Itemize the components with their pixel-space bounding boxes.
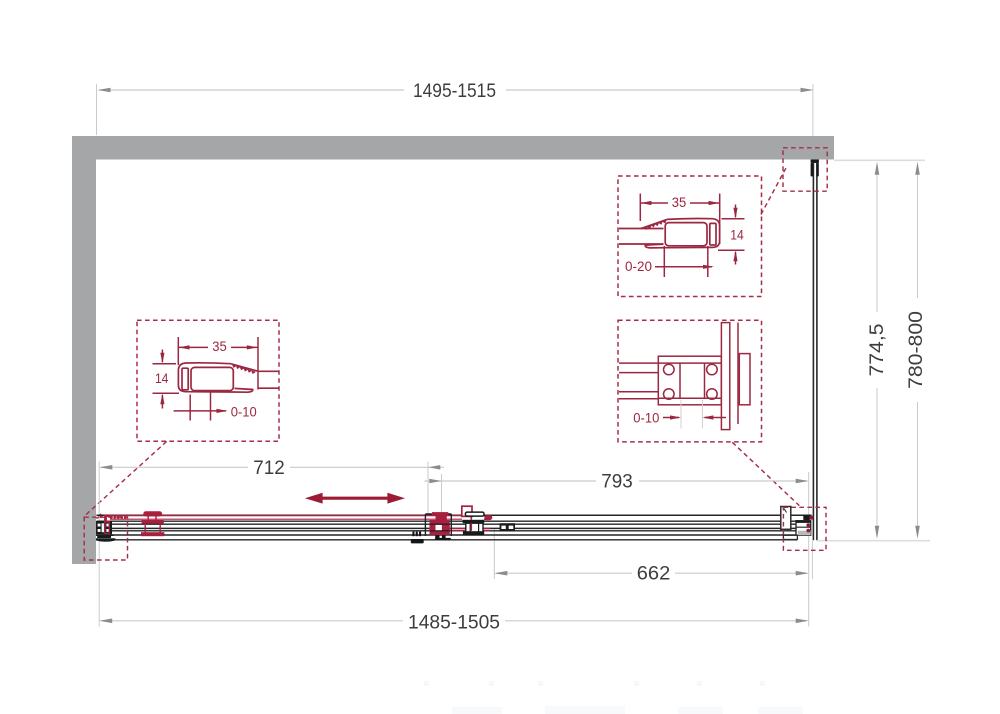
svg-text:35: 35 (212, 338, 227, 354)
svg-text:1495-1515: 1495-1515 (413, 81, 496, 102)
svg-text:0-10: 0-10 (231, 404, 257, 420)
svg-text:712: 712 (253, 458, 285, 479)
svg-text:14: 14 (730, 226, 744, 242)
svg-text:780-800: 780-800 (906, 311, 927, 389)
svg-text:35: 35 (672, 194, 687, 210)
svg-text:662: 662 (637, 564, 671, 585)
svg-text:0-20: 0-20 (625, 258, 652, 274)
svg-text:1485-1505: 1485-1505 (408, 613, 500, 634)
svg-text:774,5: 774,5 (867, 324, 888, 377)
svg-text:14: 14 (155, 370, 169, 386)
svg-text:0-10: 0-10 (633, 409, 659, 425)
svg-text:793: 793 (601, 472, 633, 493)
